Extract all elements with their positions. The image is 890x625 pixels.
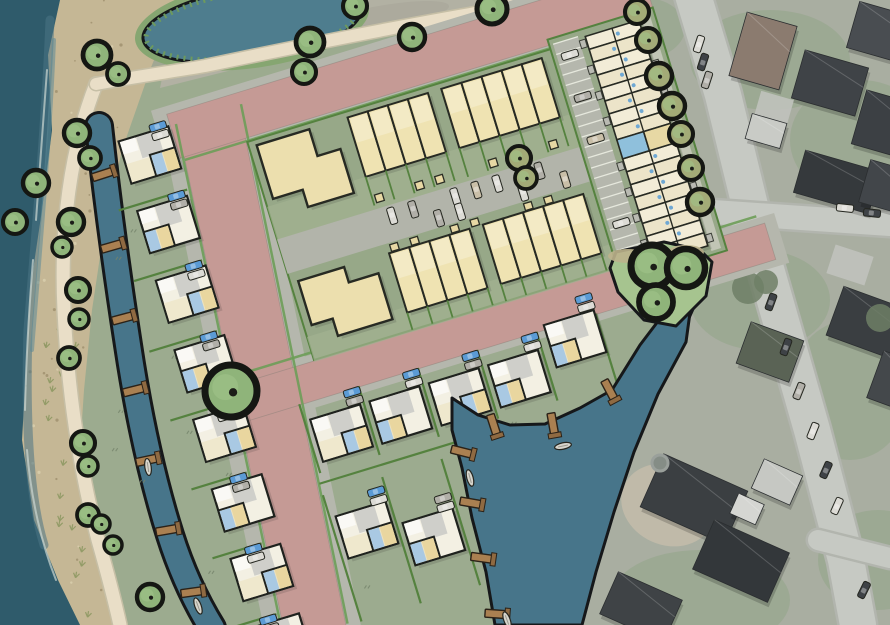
trampoline [652, 455, 668, 471]
garden-shed [544, 195, 554, 204]
tree-icon [477, 0, 507, 24]
tree-trunk-dot [658, 75, 662, 79]
tree-trunk-dot [87, 514, 91, 518]
beach-speckle [70, 112, 72, 114]
tree-icon [58, 209, 84, 235]
car-windshield [869, 210, 874, 215]
beach-speckle [119, 43, 122, 46]
tree-trunk-dot [354, 5, 358, 9]
garden-shed [523, 202, 533, 211]
tree-icon [71, 431, 95, 455]
tree-icon [107, 63, 129, 85]
tree-trunk-dot [491, 7, 496, 12]
tree-trunk-dot [14, 221, 18, 225]
tree-trunk-dot [96, 53, 100, 57]
tree-icon [66, 278, 90, 302]
beach-speckle [74, 60, 76, 62]
beach-speckle [100, 589, 103, 592]
garden-shed [435, 174, 445, 184]
garden-shed [450, 224, 460, 233]
tree-icon [69, 309, 89, 329]
garden-shed [470, 218, 480, 227]
garden-shed [390, 242, 400, 251]
tree-trunk-dot [149, 596, 153, 600]
tree-trunk-dot [117, 73, 121, 77]
beach-speckle [70, 581, 72, 583]
garden-shed [374, 193, 384, 203]
tree-trunk-dot [87, 465, 90, 468]
beach-speckle [90, 22, 92, 24]
tree-trunk-dot [309, 40, 313, 44]
tree-trunk-dot [78, 318, 81, 321]
beach-speckle [84, 172, 87, 175]
tree-trunk-dot [680, 133, 684, 137]
beach-speckle [43, 372, 46, 375]
tree-icon [399, 24, 425, 50]
tree-trunk-dot [76, 132, 80, 136]
tree-icon [137, 584, 163, 610]
tree-trunk-dot [655, 300, 660, 305]
tree-trunk-dot [82, 442, 86, 446]
tree-icon [296, 28, 324, 56]
beach-speckle [37, 471, 40, 474]
tree-icon [659, 93, 685, 119]
garden-shed [410, 236, 420, 245]
tree-trunk-dot [647, 39, 651, 43]
tree-icon [104, 536, 122, 554]
aerial-bush [754, 270, 778, 294]
tree-trunk-dot [303, 71, 307, 75]
beach-speckle [43, 279, 46, 282]
tree-trunk-dot [411, 36, 415, 40]
tree-icon [625, 0, 649, 24]
cluster-tree-icon [667, 249, 705, 287]
car-windshield [842, 205, 847, 210]
beach-speckle [53, 308, 56, 311]
tree-trunk-dot [100, 523, 103, 526]
beach-speckle [88, 194, 90, 196]
tree-icon [343, 0, 367, 18]
beach-speckle [73, 242, 76, 245]
tree-icon [83, 41, 111, 69]
beach-speckle [82, 346, 84, 348]
tree-trunk-dot [229, 388, 237, 396]
masterplan-svg [0, 0, 890, 625]
garden-shed [548, 140, 558, 150]
tree-icon [669, 122, 693, 146]
beach-speckle [77, 546, 79, 548]
beach-speckle [55, 478, 57, 480]
tree-trunk-dot [684, 266, 690, 272]
tree-trunk-dot [77, 289, 81, 293]
site-plan-screenshot [0, 0, 890, 625]
tree-icon [679, 156, 703, 180]
beach-speckle [117, 127, 119, 129]
tree-trunk-dot [671, 105, 675, 109]
tree-icon [636, 28, 660, 52]
beach-speckle [55, 419, 58, 422]
beach-speckle [46, 374, 49, 377]
beach-speckle [51, 358, 53, 360]
tree-icon [515, 167, 537, 189]
tree-trunk-dot [518, 157, 522, 161]
beach-speckle [55, 90, 58, 93]
tree-trunk-dot [70, 221, 74, 225]
beach-speckle [56, 368, 58, 370]
aerial-car [836, 203, 854, 212]
tree-trunk-dot [690, 167, 694, 171]
tree-trunk-dot [525, 177, 529, 181]
garden-shed [415, 180, 425, 190]
beach-speckle [88, 209, 91, 212]
junction-tree-icon [205, 365, 257, 417]
tree-icon [64, 120, 90, 146]
tree-trunk-dot [650, 264, 657, 271]
cluster-tree-icon [639, 285, 673, 319]
tree-trunk-dot [699, 201, 703, 205]
tree-icon [687, 189, 713, 215]
tree-icon [58, 347, 80, 369]
tree-icon [79, 147, 101, 169]
aerial-car [863, 208, 881, 217]
tree-trunk-dot [89, 157, 93, 161]
tree-icon [292, 60, 316, 84]
garden-shed [488, 158, 498, 168]
beach-speckle [76, 559, 78, 561]
tree-trunk-dot [636, 11, 640, 15]
tree-icon [52, 237, 72, 257]
tree-trunk-dot [61, 246, 64, 249]
tree-icon [23, 170, 49, 196]
tree-icon [3, 210, 27, 234]
tree-icon [92, 515, 110, 533]
tree-trunk-dot [112, 544, 115, 547]
tree-icon [646, 63, 672, 89]
tree-icon [78, 456, 98, 476]
tree-trunk-dot [35, 182, 39, 186]
tree-trunk-dot [68, 357, 72, 361]
